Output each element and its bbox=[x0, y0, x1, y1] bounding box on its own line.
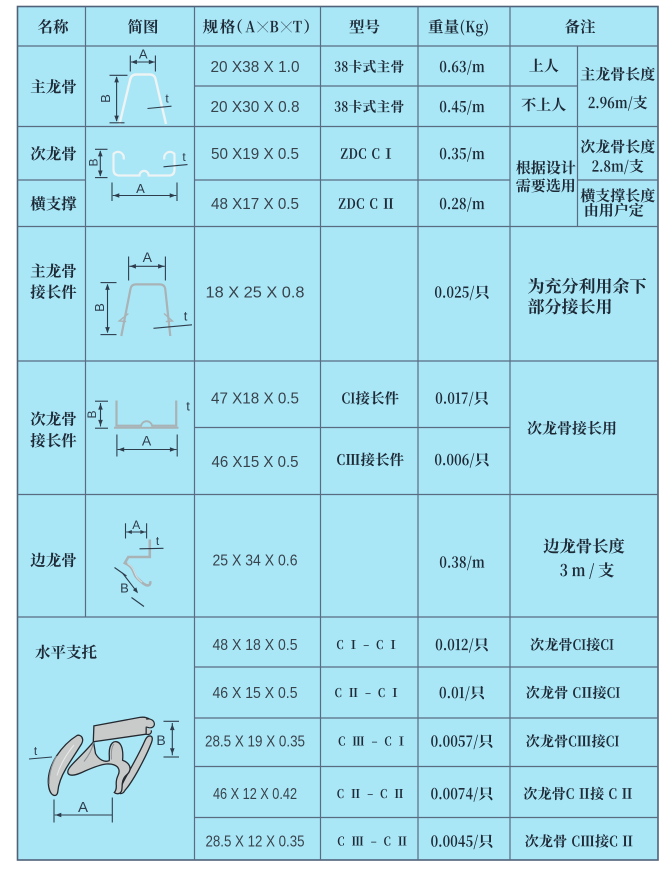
svg-text:46 X15 X 0.5: 46 X15 X 0.5 bbox=[212, 454, 299, 471]
svg-text:B: B bbox=[156, 732, 165, 748]
svg-text:B: B bbox=[86, 158, 100, 166]
svg-text:A: A bbox=[78, 799, 88, 816]
svg-text:t: t bbox=[186, 399, 190, 414]
svg-text:B: B bbox=[85, 410, 99, 418]
svg-text:46 X 15 X 0.5: 46 X 15 X 0.5 bbox=[213, 685, 298, 702]
svg-text:A: A bbox=[132, 518, 140, 532]
svg-text:18 X 25 X 0.8: 18 X 25 X 0.8 bbox=[206, 285, 305, 302]
svg-text:48 X 18 X 0.5: 48 X 18 X 0.5 bbox=[213, 637, 298, 654]
svg-text:48 X17 X 0.5: 48 X17 X 0.5 bbox=[211, 196, 299, 213]
svg-text:A: A bbox=[142, 433, 152, 449]
svg-text:B: B bbox=[92, 303, 107, 312]
svg-text:46 X 12 X 0.42: 46 X 12 X 0.42 bbox=[213, 786, 297, 803]
svg-text:20 X30 X 0.8: 20 X30 X 0.8 bbox=[211, 99, 300, 116]
svg-text:B: B bbox=[98, 94, 113, 103]
svg-text:t: t bbox=[184, 309, 188, 324]
svg-text:50 X19 X 0.5: 50 X19 X 0.5 bbox=[211, 146, 299, 163]
svg-text:25 X 34 X 0.6: 25 X 34 X 0.6 bbox=[213, 553, 298, 570]
svg-text:47 X18 X 0.5: 47 X18 X 0.5 bbox=[211, 391, 299, 408]
svg-text:20 X38 X 1.0: 20 X38 X 1.0 bbox=[211, 59, 300, 76]
svg-text:28.5 X 19 X 0.35: 28.5 X 19 X 0.35 bbox=[205, 734, 305, 751]
svg-text:28.5 X 12 X 0.35: 28.5 X 12 X 0.35 bbox=[206, 834, 305, 851]
svg-text:A: A bbox=[136, 181, 145, 196]
svg-text:A: A bbox=[139, 47, 148, 62]
svg-text:A: A bbox=[143, 249, 153, 265]
svg-text:B: B bbox=[120, 581, 129, 596]
